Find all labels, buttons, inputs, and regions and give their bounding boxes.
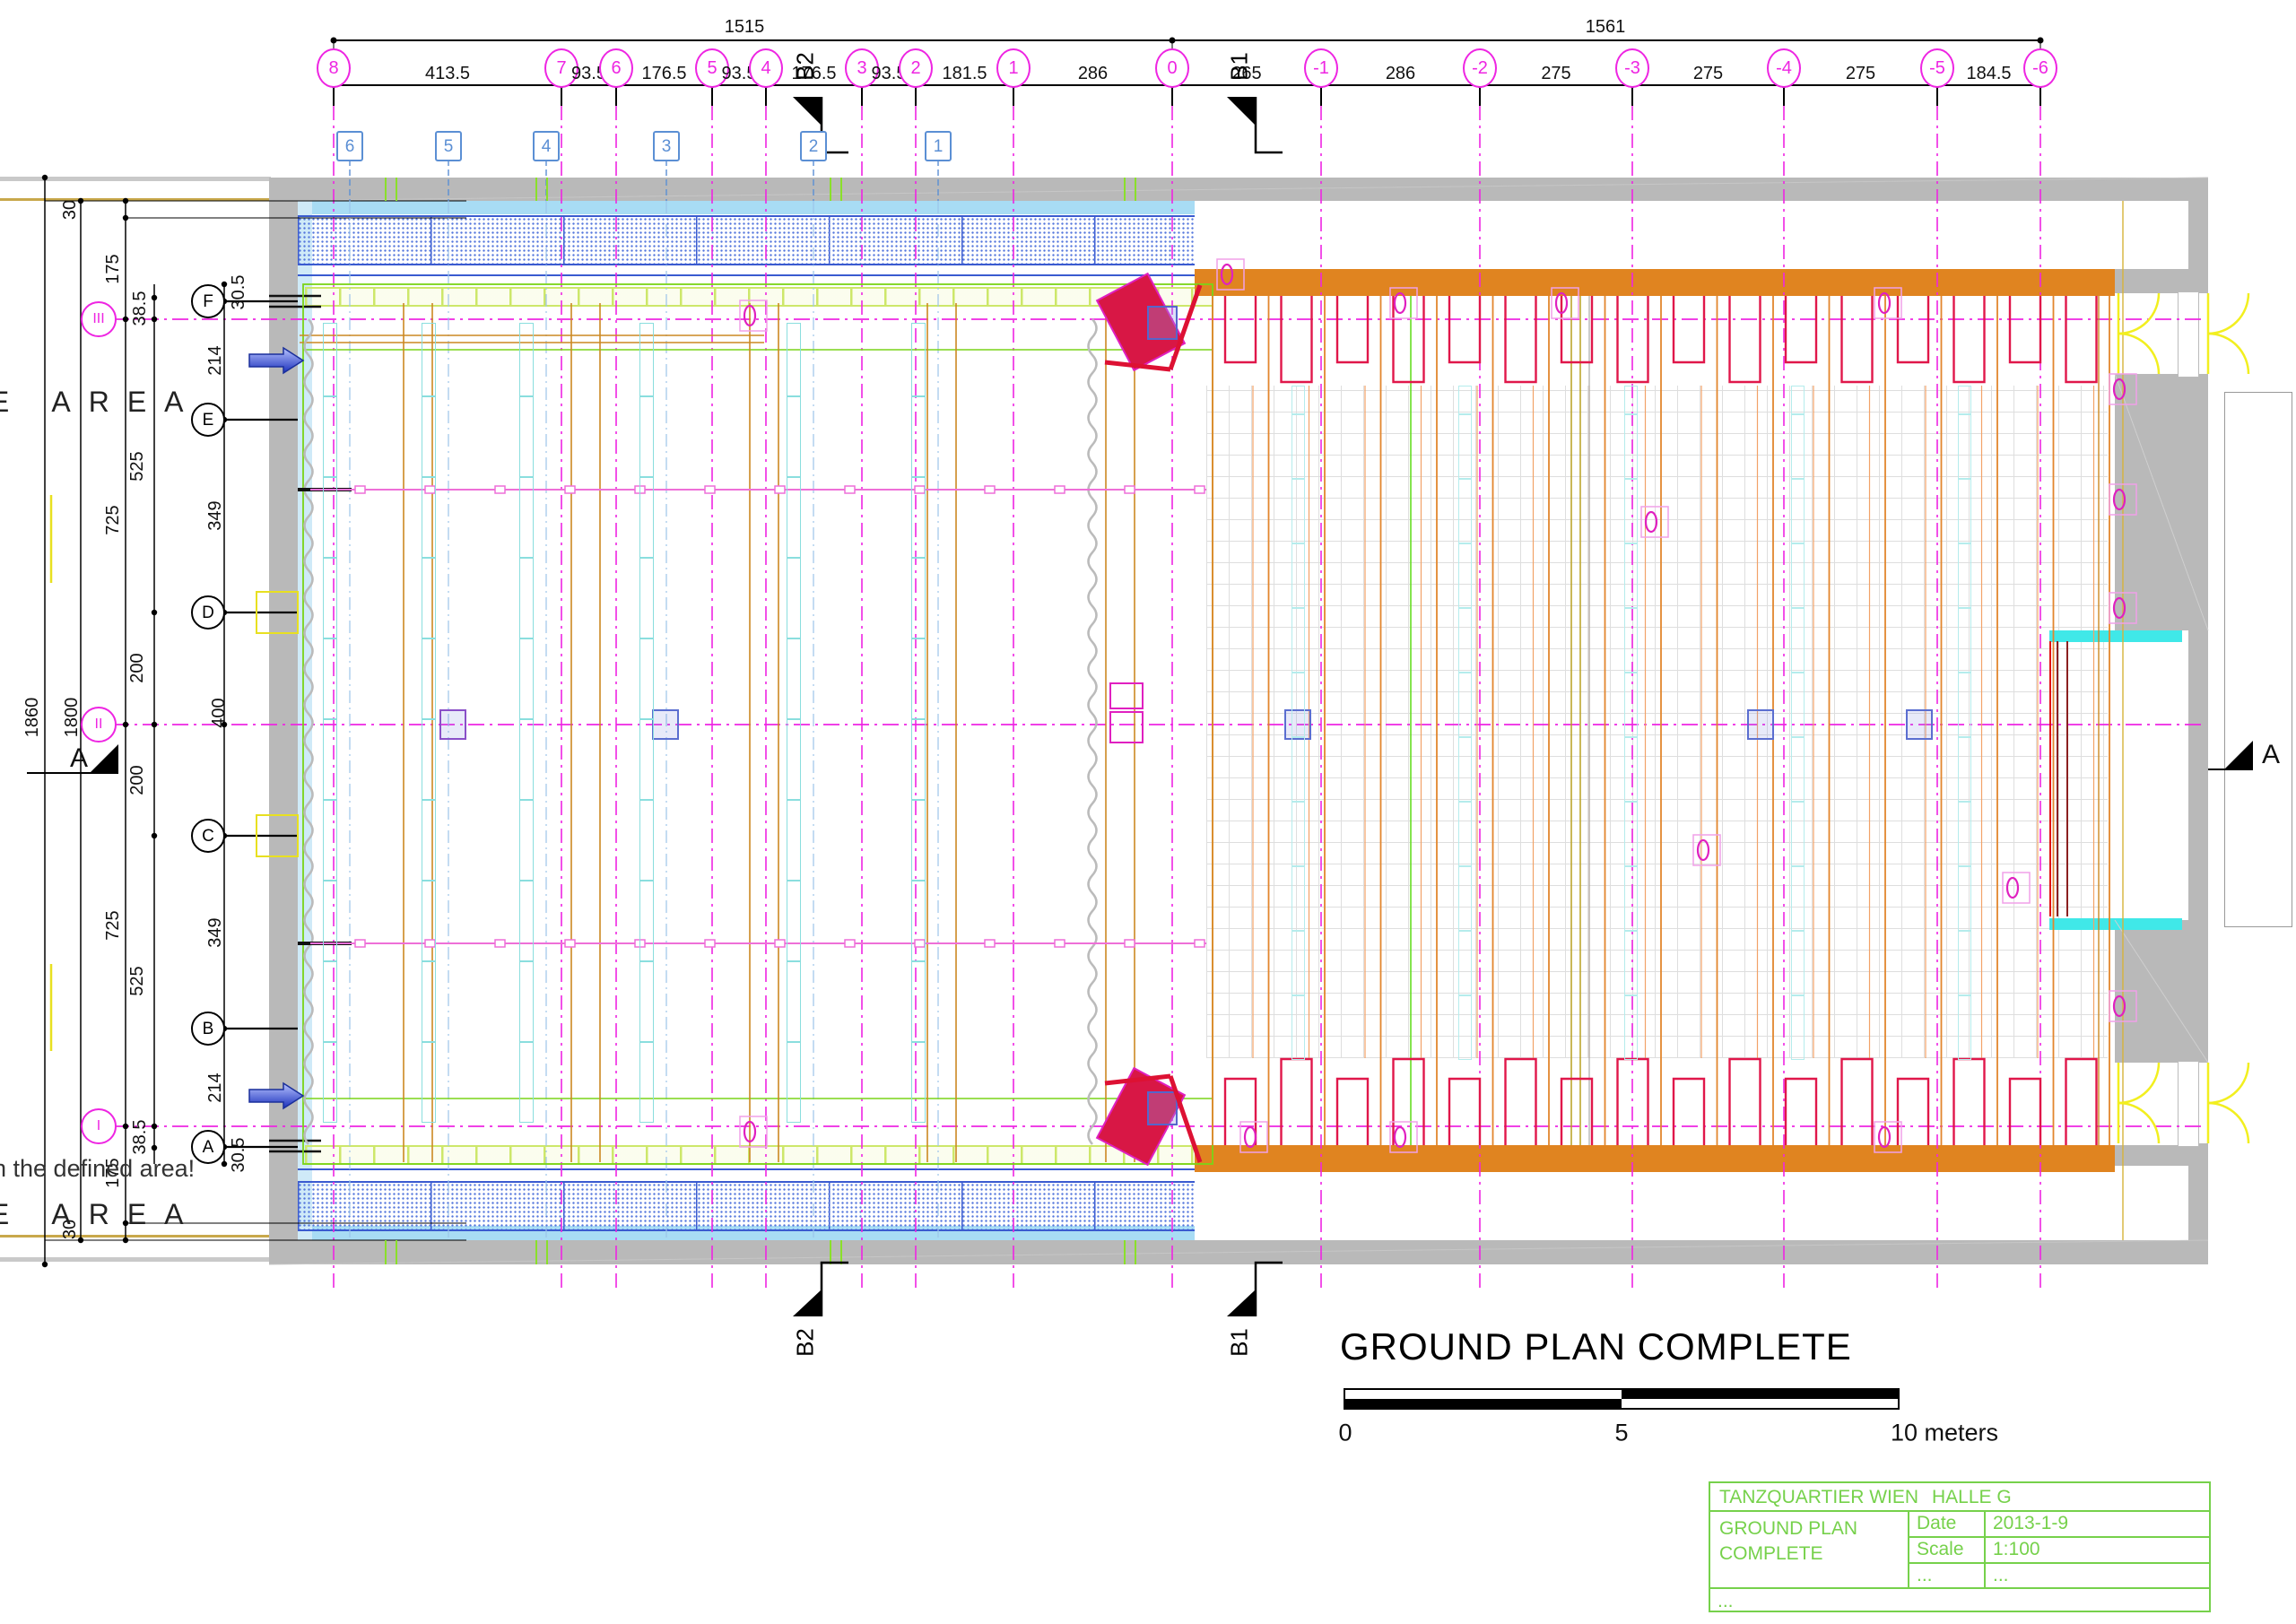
column-bubble: -3 (1615, 48, 1649, 88)
title-block: TANZQUARTIER WIEN HALLE G GROUND PLAN CO… (1709, 1481, 2211, 1612)
scale-bar-seg (1622, 1390, 1898, 1399)
column-bubble: 2 (899, 48, 933, 88)
scale-bar-seg (1345, 1399, 1622, 1408)
title-block-project: TANZQUARTIER WIEN (1719, 1488, 1918, 1507)
row-bubble: B (191, 1012, 225, 1046)
axis-bubble: II (81, 707, 117, 743)
left-dim-mid: 525 (128, 966, 146, 995)
axis-bubble: I (81, 1108, 117, 1144)
scale-bar-seg (1345, 1390, 1622, 1399)
column-spacing-label: 286 (1386, 65, 1415, 83)
left-dim-mid: 38.5 (131, 291, 149, 326)
column-spacing-label: 176.5 (641, 65, 686, 83)
scale-tick-5: 5 (1614, 1421, 1628, 1446)
seating-track (1291, 386, 1305, 1060)
stage-bar-label: 3 (653, 131, 680, 161)
title-block-line (1710, 1510, 2209, 1512)
section-marker-b2-top: B2 (792, 52, 820, 81)
stage-bar-label: 5 (435, 131, 462, 161)
axis-bubble: III (81, 301, 117, 337)
drawing-title: GROUND PLAN COMPLETE (1340, 1325, 1852, 1368)
column-spacing-label: 181.5 (942, 65, 987, 83)
left-dim-outer: 175 (104, 254, 122, 283)
scale-tick-0: 0 (1338, 1421, 1352, 1446)
title-block-drawing-1: GROUND PLAN (1719, 1519, 1857, 1538)
left-dim-mid: 38.5 (131, 1120, 149, 1155)
stage-track (323, 323, 337, 1123)
stage-bar-label: 2 (800, 131, 827, 161)
section-marker-b1-top: B1 (1226, 52, 1254, 81)
column-bubble: 6 (599, 48, 633, 88)
column-bubble: -5 (1920, 48, 1954, 88)
left-dim-row: 30.5 (230, 1138, 248, 1173)
stage-track (519, 323, 534, 1123)
stage-track (422, 323, 436, 1123)
left-dim-row: 214 (206, 345, 224, 375)
section-marker-b1-bottom: B1 (1226, 1328, 1254, 1357)
seating-track (1458, 386, 1472, 1060)
left-overall-dim: 1860 (23, 698, 41, 738)
left-dim-row: 214 (206, 1073, 224, 1102)
title-block-line (1984, 1510, 1986, 1589)
column-bubble: -1 (1304, 48, 1338, 88)
left-dim-row: 30.5 (230, 275, 248, 310)
column-spacing-label: 275 (1846, 65, 1875, 83)
stage-area-label-top: GE AREA (0, 386, 202, 419)
left-dim-outer: 725 (104, 505, 122, 534)
stage-bar-label: 6 (336, 131, 363, 161)
left-dim-mid: 200 (128, 653, 146, 682)
title-block-scale-label: Scale (1917, 1540, 1964, 1559)
column-bubble: 0 (1155, 48, 1189, 88)
column-spacing-label: 275 (1693, 65, 1723, 83)
left-dim-row: 349 (206, 917, 224, 947)
column-spacing-label: 413.5 (425, 65, 470, 83)
stage-track (639, 323, 654, 1123)
left-dim-row: 349 (206, 500, 224, 530)
section-marker-a-left: A (70, 745, 88, 772)
stage-track (787, 323, 801, 1123)
title-block-line (1908, 1562, 2209, 1564)
scale-tick-10: 10 meters (1891, 1421, 1998, 1446)
seating-track (1624, 386, 1638, 1060)
title-block-date-value: 2013-1-9 (1993, 1514, 2068, 1533)
left-dim-mid: 525 (128, 451, 146, 481)
overall-dim-left: 1515 (725, 18, 765, 36)
row-bubble: F (191, 284, 225, 318)
left-dim-mid: 200 (128, 765, 146, 795)
title-block-footer: ... (1718, 1592, 1734, 1611)
column-bubble: 1 (996, 48, 1031, 88)
column-bubble: 4 (749, 48, 783, 88)
row-bubble: D (191, 595, 225, 630)
title-block-hall: HALLE G (1932, 1488, 2012, 1507)
scale-bar (1344, 1388, 1900, 1410)
overall-dim-right: 1561 (1586, 18, 1626, 36)
column-bubble: -2 (1463, 48, 1497, 88)
row-bubble: A (191, 1130, 225, 1164)
row-bubble: C (191, 819, 225, 853)
column-spacing-label: 184.5 (1966, 65, 2011, 83)
defined-area-note: n the defined area! (0, 1155, 195, 1183)
title-block-line (1908, 1510, 1909, 1589)
title-block-misc-value: ... (1993, 1566, 2009, 1585)
floor-plan-sheet: { "drawing": {"title": "GROUND PLAN COMP… (0, 0, 2296, 1624)
stage-track (911, 323, 926, 1123)
section-marker-b2-bottom: B2 (792, 1328, 820, 1357)
stage-area-label-bottom: GE AREA (0, 1198, 202, 1231)
left-dim-outer: 725 (104, 910, 122, 940)
scale-bar-seg (1622, 1399, 1898, 1408)
title-block-line (1908, 1536, 2209, 1538)
column-spacing-label: 275 (1541, 65, 1570, 83)
left-inner-dim: 1800 (63, 698, 81, 738)
left-dim-outer: 30 (61, 200, 79, 220)
column-bubble: -6 (2023, 48, 2057, 88)
left-dim-row: 400 (210, 698, 228, 727)
section-marker-a-right: A (2262, 742, 2280, 769)
seating-track (1791, 386, 1805, 1060)
stage-bar-label: 1 (925, 131, 952, 161)
column-spacing-label: 286 (1078, 65, 1108, 83)
title-block-date-label: Date (1917, 1514, 1956, 1533)
title-block-drawing-2: COMPLETE (1719, 1544, 1823, 1563)
stage-bar-label: 4 (533, 131, 560, 161)
generated-labels: 8413.5793.56176.5593.54176.5393.52181.51… (0, 0, 2296, 1624)
title-block-scale-value: 1:100 (1993, 1540, 2040, 1559)
column-bubble: -4 (1767, 48, 1801, 88)
title-block-misc-label: ... (1917, 1566, 1933, 1585)
title-block-line (1710, 1587, 2209, 1589)
seating-track (1958, 386, 1971, 1060)
column-bubble: 8 (317, 48, 351, 88)
